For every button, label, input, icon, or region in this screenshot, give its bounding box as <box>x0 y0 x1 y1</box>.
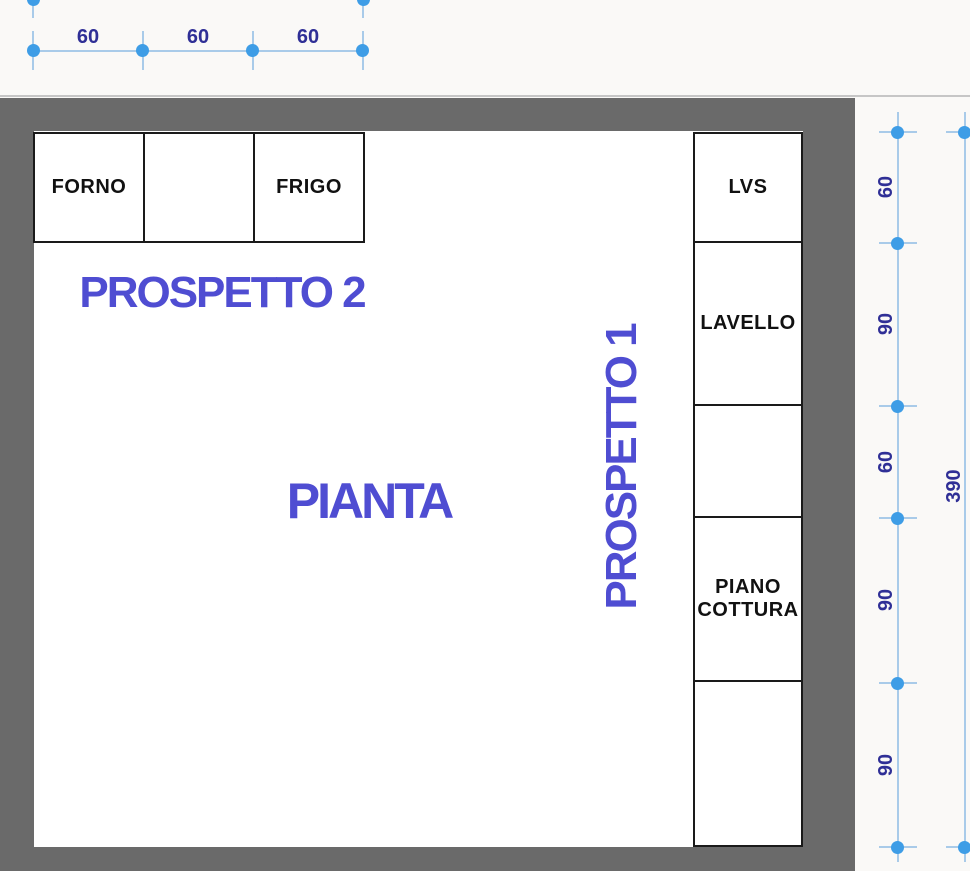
dim-marker-dot <box>357 0 370 6</box>
pianta-label: PIANTA <box>249 475 489 527</box>
dim-value-90: 90 <box>875 735 897 795</box>
floor-plan-drawing: FORNO FRIGO LVS LAVELLO PIANO COTTURA PR… <box>0 0 970 871</box>
cabinet-forno: FORNO <box>33 132 145 243</box>
cabinet-lavello: LAVELLO <box>693 241 803 406</box>
dim-value-60: 60 <box>176 26 220 48</box>
dim-marker-dot <box>891 126 904 139</box>
dim-marker-dot <box>958 126 970 139</box>
dim-value-total-390: 390 <box>943 453 965 519</box>
page-divider-line <box>0 95 970 97</box>
cabinet-empty-right-1 <box>693 404 803 518</box>
cabinet-empty-top <box>143 132 255 243</box>
dim-marker-dot <box>891 400 904 413</box>
cabinet-lvs: LVS <box>693 132 803 243</box>
dim-marker-dot <box>246 44 259 57</box>
dim-value-60: 60 <box>66 26 110 48</box>
dim-marker-dot <box>891 841 904 854</box>
wall-top <box>0 98 855 131</box>
cabinet-frigo-label: FRIGO <box>276 176 342 199</box>
cabinet-piano-cottura: PIANO COTTURA <box>693 516 803 682</box>
dim-line-vertical <box>897 112 899 862</box>
dim-marker-dot <box>891 677 904 690</box>
dim-marker-dot <box>27 0 40 6</box>
dim-marker-dot <box>891 512 904 525</box>
cabinet-empty-right-2 <box>693 680 803 847</box>
cabinet-lvs-label: LVS <box>729 176 768 199</box>
dim-value-90: 90 <box>875 570 897 630</box>
wall-bottom <box>0 847 855 871</box>
dim-marker-dot <box>356 44 369 57</box>
dim-value-60: 60 <box>875 157 897 217</box>
dim-value-90: 90 <box>875 294 897 354</box>
wall-left <box>0 98 34 871</box>
dim-marker-dot <box>958 841 970 854</box>
cabinet-piano-cottura-label: PIANO COTTURA <box>695 576 801 622</box>
prospetto-2-label: PROSPETTO 2 <box>62 272 382 314</box>
dim-marker-dot <box>27 44 40 57</box>
cabinet-forno-label: FORNO <box>52 176 127 199</box>
wall-right <box>803 98 855 871</box>
dim-value-60: 60 <box>875 432 897 492</box>
cabinet-frigo: FRIGO <box>253 132 365 243</box>
dim-line-horizontal <box>33 50 363 52</box>
prospetto-1-label: PROSPETTO 1 <box>601 307 643 627</box>
cabinet-lavello-label: LAVELLO <box>700 312 795 335</box>
dim-value-60: 60 <box>286 26 330 48</box>
dim-marker-dot <box>136 44 149 57</box>
dim-marker-dot <box>891 237 904 250</box>
